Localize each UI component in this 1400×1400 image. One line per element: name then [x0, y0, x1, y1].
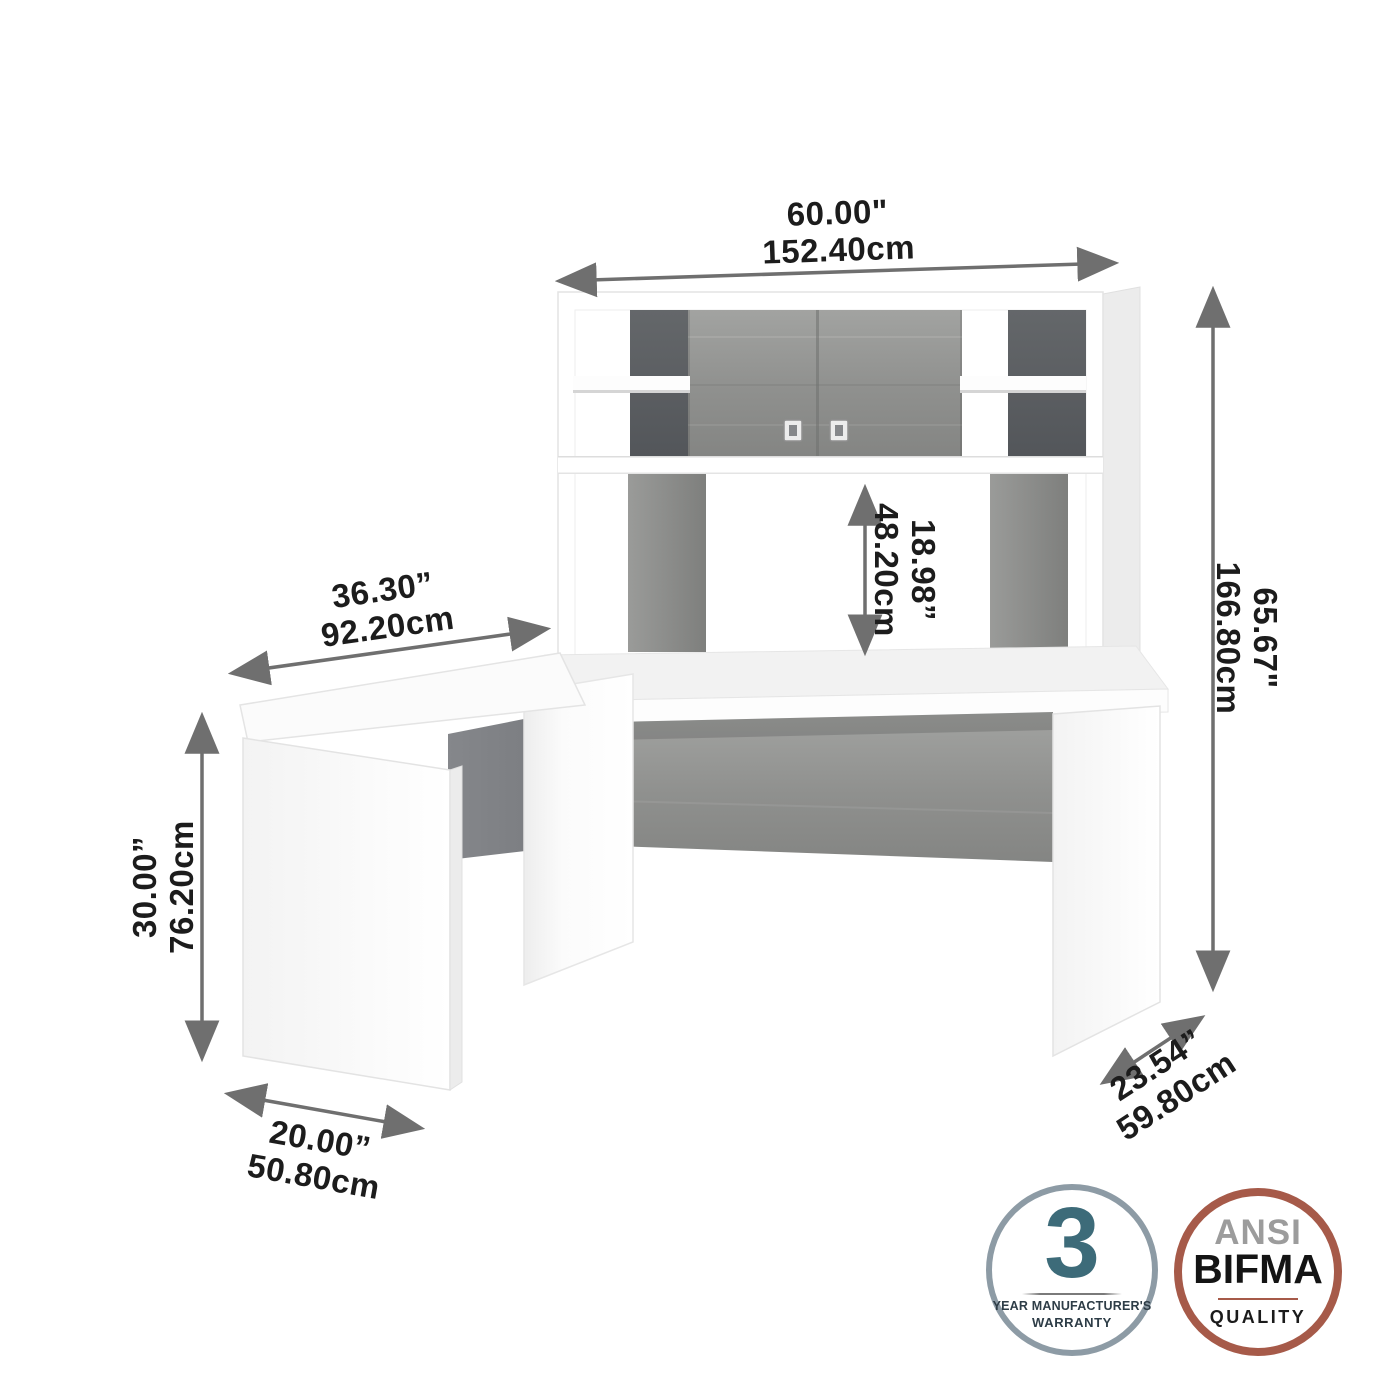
- dimension-label-height: 65.67" 166.80cm: [1210, 562, 1284, 715]
- return-middle-leg: [524, 674, 633, 985]
- opening-inches: 18.98”: [905, 503, 942, 637]
- return-end-panel: [243, 738, 450, 1090]
- ansi-label: ANSI: [1182, 1216, 1334, 1249]
- product-dimension-diagram: 60.00" 152.40cm 36.30” 92.20cm 65.67" 16…: [0, 0, 1400, 1400]
- door-handle-left: [784, 420, 802, 441]
- dimension-label-opening: 18.98” 48.20cm: [868, 503, 942, 637]
- width-inches: 60.00": [760, 191, 914, 233]
- height-cm: 166.80cm: [1210, 562, 1247, 715]
- dimension-label-width: 60.00" 152.40cm: [760, 191, 915, 270]
- warranty-years: 3: [992, 1194, 1152, 1292]
- dimension-label-desk-height: 30.00” 76.20cm: [126, 820, 200, 954]
- ansi-bifma-badge: ANSI BIFMA QUALITY: [1174, 1188, 1342, 1356]
- opening-cm: 48.20cm: [868, 503, 905, 637]
- quality-label: QUALITY: [1182, 1307, 1334, 1328]
- hutch-support-left: [628, 474, 706, 652]
- return-desk: [240, 653, 633, 1090]
- hutch-support-right: [990, 474, 1068, 652]
- hutch: [558, 287, 1140, 696]
- warranty-line2: WARRANTY: [992, 1315, 1152, 1331]
- main-desk-right-panel: [1053, 706, 1160, 1056]
- ansi-divider: [1218, 1298, 1298, 1300]
- width-cm: 152.40cm: [762, 228, 916, 270]
- warranty-line1: YEAR MANUFACTURER'S: [992, 1299, 1152, 1315]
- door-handle-right: [830, 420, 848, 441]
- bifma-label: BIFMA: [1182, 1249, 1334, 1291]
- desk-height-inches: 30.00”: [126, 820, 163, 954]
- height-inches: 65.67": [1247, 562, 1284, 715]
- desk-height-cm: 76.20cm: [163, 820, 200, 954]
- warranty-badge: 3 YEAR MANUFACTURER'S WARRANTY: [986, 1184, 1158, 1356]
- hutch-doors: [688, 310, 962, 456]
- main-desk: [545, 646, 1168, 1056]
- desk-illustration: [0, 0, 1400, 1400]
